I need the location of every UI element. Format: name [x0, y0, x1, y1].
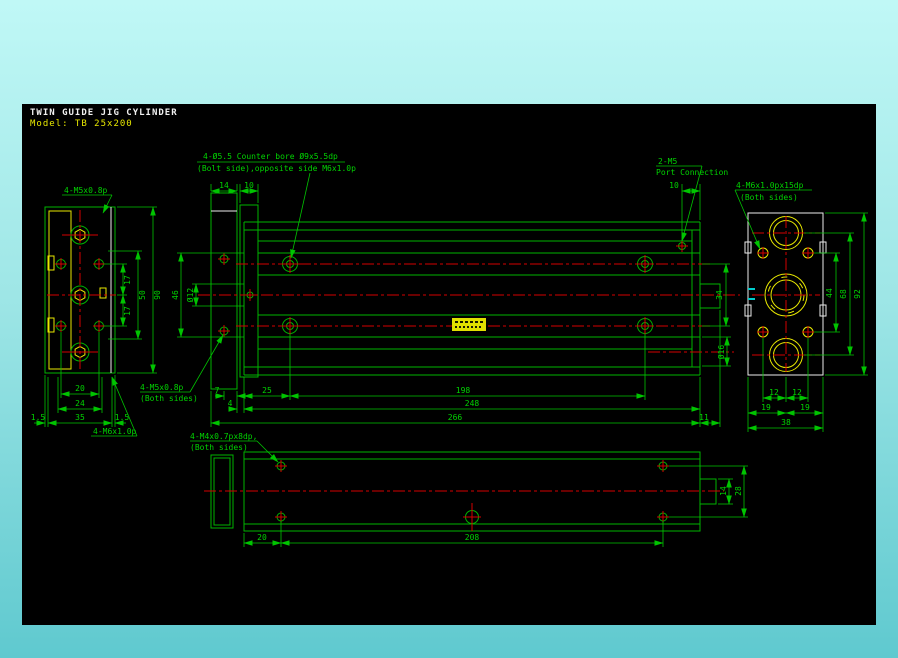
dim-19-left: 19 — [761, 403, 771, 412]
mid-thread-note-line2: (Both sides) — [140, 394, 198, 403]
counterbore-note-line1: 4-Ø5.5 Counter bore Ø9x5.5dp — [203, 151, 338, 161]
dim-4: 4 — [228, 399, 233, 408]
dim-bottom-14: 14 — [719, 486, 728, 496]
dim-28: 28 — [734, 486, 743, 496]
dim-208: 208 — [465, 533, 480, 542]
dim-46: 46 — [171, 290, 180, 300]
dim-198: 198 — [456, 386, 471, 395]
dim-24: 24 — [75, 399, 85, 408]
left-bottom-thread-note: 4-M6x1.0p — [93, 427, 137, 436]
dim-38: 38 — [781, 418, 791, 427]
cad-viewport[interactable]: TWIN GUIDE JIG CYLINDER Model: TB 25x200 — [0, 0, 898, 658]
dim-11: 11 — [699, 413, 709, 422]
dim-1p5-left: 1.5 — [31, 413, 46, 422]
dim-rod-12: Ø12 — [185, 288, 195, 303]
dim-44: 44 — [825, 288, 834, 298]
dim-17a: 17 — [123, 275, 132, 285]
dim-1p5-right: 1.5 — [115, 413, 130, 422]
dim-90: 90 — [153, 290, 162, 300]
right-thread-note-line2: (Both sides) — [740, 193, 798, 202]
drawing-model: Model: TB 25x200 — [30, 119, 133, 129]
dim-12-right: 12 — [792, 388, 802, 397]
dim-7: 7 — [215, 386, 220, 395]
dim-34: 34 — [715, 290, 724, 300]
counterbore-note-line2: (Bolt side),opposite side M6x1.0p — [197, 164, 356, 173]
dim-19-right: 19 — [800, 403, 810, 412]
dim-17b: 17 — [123, 306, 132, 316]
dim-92: 92 — [853, 289, 862, 299]
dim-248: 248 — [465, 399, 480, 408]
dim-20: 20 — [75, 384, 85, 393]
dim-50: 50 — [138, 290, 147, 300]
port-note-line1: 2-M5 — [658, 157, 677, 166]
dim-68: 68 — [839, 289, 848, 299]
right-thread-note-line1: 4-M6x1.0px15dp — [736, 181, 804, 190]
product-label — [452, 318, 486, 331]
dim-bottom-20: 20 — [257, 533, 267, 542]
dim-25: 25 — [262, 386, 272, 395]
dim-rod-16: Ø16 — [716, 345, 726, 360]
dim-10: 10 — [244, 181, 254, 190]
dim-14: 14 — [219, 181, 229, 190]
left-top-thread-note: 4-M5x0.8p — [64, 186, 108, 195]
desktop-background: TWIN GUIDE JIG CYLINDER Model: TB 25x200 — [0, 0, 898, 658]
dim-35: 35 — [75, 413, 85, 422]
port-note-line2: Port Connection — [656, 168, 728, 177]
mid-thread-note-line1: 4-M5x0.8p — [140, 383, 184, 392]
dim-12-left: 12 — [769, 388, 779, 397]
dim-266: 266 — [448, 413, 463, 422]
drawing-title: TWIN GUIDE JIG CYLINDER — [30, 108, 178, 118]
bottom-thread-note-line1: 4-M4x0.7px8dp, — [190, 432, 257, 441]
bottom-thread-note-line2: (Both sides) — [190, 443, 248, 452]
dim-port-10: 10 — [669, 181, 679, 190]
